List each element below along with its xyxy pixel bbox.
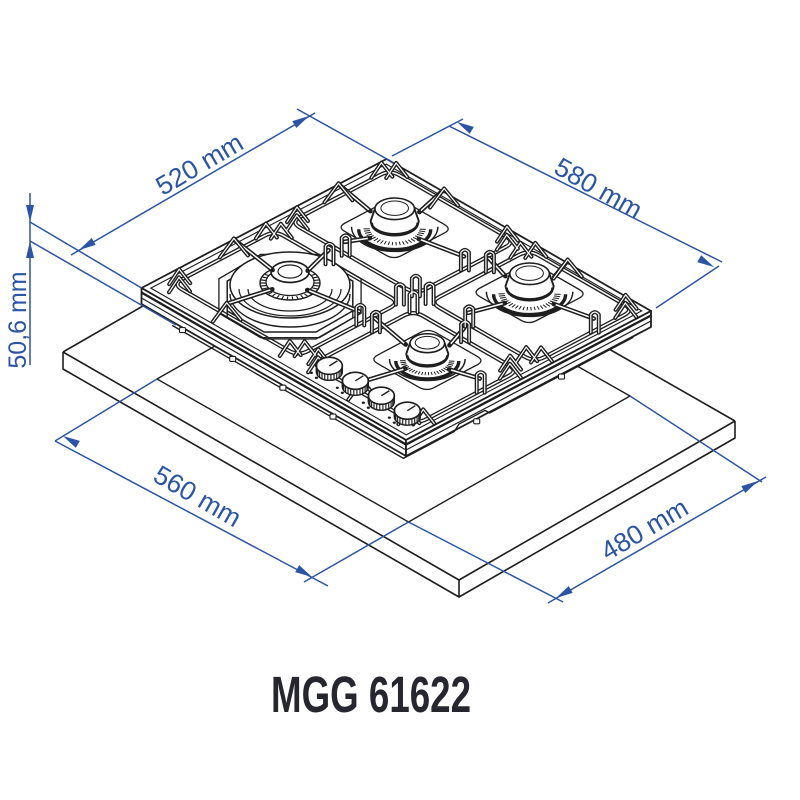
svg-text:MGG 61622: MGG 61622 [271, 667, 471, 723]
svg-text:50,6 mm: 50,6 mm [4, 271, 32, 368]
